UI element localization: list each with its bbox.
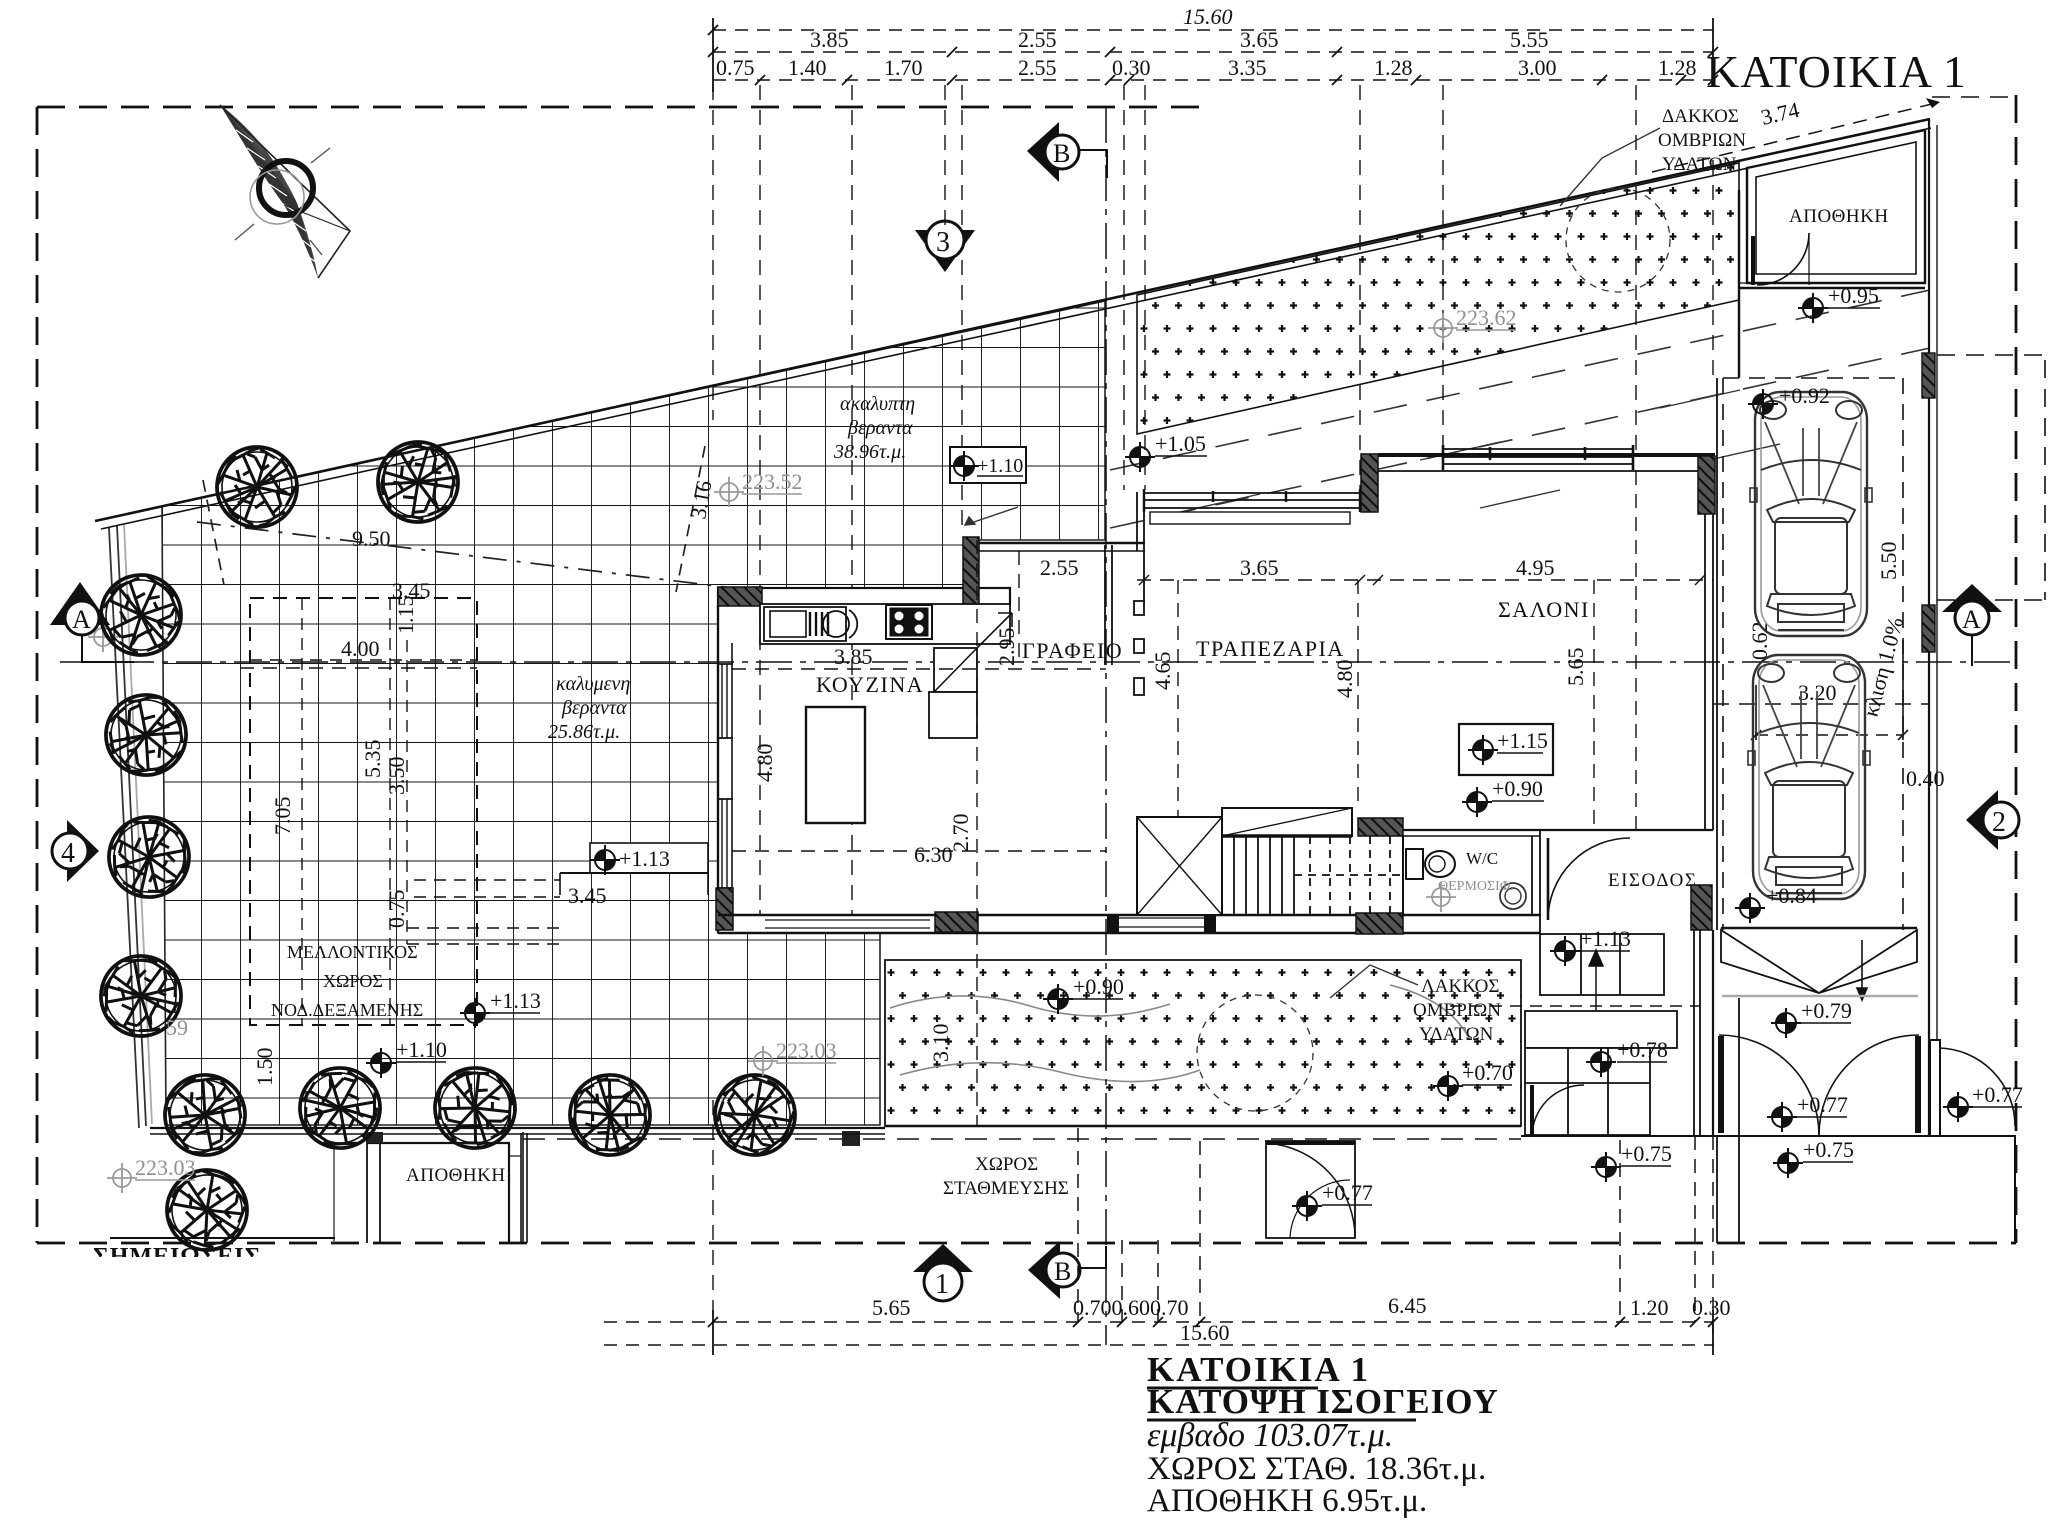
svg-text:1.28: 1.28 [1374,55,1413,80]
svg-text:3.35: 3.35 [1228,55,1267,80]
svg-text:5.35: 5.35 [360,740,385,779]
svg-text:3.85: 3.85 [810,27,849,52]
svg-text:5.65: 5.65 [1563,648,1588,687]
svg-text:ΧΩΡΟΣ: ΧΩΡΟΣ [323,971,383,991]
svg-text:ΓΡΑΦΕΙΟ: ΓΡΑΦΕΙΟ [1022,638,1123,663]
svg-text:15.60: 15.60 [1180,1320,1230,1345]
svg-text:4.80: 4.80 [752,744,777,783]
svg-text:59: 59 [166,1015,188,1040]
svg-text:+1.05: +1.05 [1155,431,1206,456]
svg-text:+1.13: +1.13 [619,846,670,871]
svg-text:223.03: 223.03 [776,1038,837,1063]
svg-text:6.30: 6.30 [914,842,953,867]
svg-text:5.65: 5.65 [872,1295,911,1320]
svg-text:1.40: 1.40 [788,55,827,80]
svg-text:3.85: 3.85 [834,644,873,669]
svg-text:ΣΤΑΘΜΕΥΣΗΣ: ΣΤΑΘΜΕΥΣΗΣ [943,1178,1069,1199]
svg-text:βεραντα: βεραντα [561,697,627,719]
svg-text:+1.15: +1.15 [1497,728,1548,753]
svg-text:223.52: 223.52 [742,469,803,494]
svg-text:+0.75: +0.75 [1621,1141,1672,1166]
svg-text:ΑΠΟΘΗΚΗ 6.95τ.μ.: ΑΠΟΘΗΚΗ 6.95τ.μ. [1147,1483,1427,1519]
svg-text:0.700.600.70: 0.700.600.70 [1073,1295,1189,1320]
svg-text:+0.77: +0.77 [1322,1180,1373,1205]
svg-text:2.55: 2.55 [1040,555,1079,580]
svg-text:25.86τ.μ.: 25.86τ.μ. [548,721,620,743]
svg-text:4: 4 [61,838,75,869]
svg-text:βεραντα: βεραντα [847,417,913,439]
svg-text:1.20: 1.20 [1630,1295,1669,1320]
svg-text:B: B [1053,139,1070,168]
svg-text:+0.77: +0.77 [1972,1082,2023,1107]
svg-text:3.50: 3.50 [384,757,409,796]
svg-text:ΚΑΤΟΙΚΙΑ 1: ΚΑΤΟΙΚΙΑ 1 [1706,46,1967,97]
svg-text:223.03: 223.03 [135,1155,196,1180]
svg-text:+1.13: +1.13 [490,988,541,1013]
svg-text:ΟΜΒΡΙΩΝ: ΟΜΒΡΙΩΝ [1658,130,1746,151]
svg-text:W/C: W/C [1466,849,1498,868]
svg-text:2.55: 2.55 [1018,27,1057,52]
svg-text:5.50: 5.50 [1876,542,1901,581]
svg-text:+0.95: +0.95 [1828,283,1879,308]
svg-text:ΜΕΛΛΟΝΤΙΚΟΣ: ΜΕΛΛΟΝΤΙΚΟΣ [287,942,418,962]
svg-text:ΤΡΑΠΕΖΑΡΙΑ: ΤΡΑΠΕΖΑΡΙΑ [1196,636,1345,661]
svg-text:0.30: 0.30 [1692,1295,1731,1320]
svg-text:4.80: 4.80 [1332,660,1357,699]
svg-text:ΑΠΟΘΗΚΗ: ΑΠΟΘΗΚΗ [406,1165,506,1186]
svg-text:+0.90: +0.90 [1492,776,1543,801]
svg-text:15.60: 15.60 [1183,4,1233,29]
svg-text:+1.10: +1.10 [396,1037,447,1062]
svg-text:3.10: 3.10 [928,1024,953,1063]
svg-text:+0.78: +0.78 [1617,1037,1668,1062]
svg-text:ΥΔΑΤΩΝ: ΥΔΑΤΩΝ [1419,1024,1494,1045]
svg-text:1.50: 1.50 [252,1048,277,1087]
svg-text:1.15: 1.15 [393,596,418,635]
svg-text:2: 2 [1992,807,2006,838]
svg-text:5.55: 5.55 [1510,27,1549,52]
svg-text:ΥΔΑΤΩΝ: ΥΔΑΤΩΝ [1662,154,1737,175]
svg-text:0.62: 0.62 [1747,622,1772,661]
svg-text:3.65: 3.65 [1240,555,1279,580]
svg-text:1: 1 [935,1269,949,1300]
svg-text:ΛΑΚΚΟΣ: ΛΑΚΚΟΣ [1421,976,1499,997]
svg-text:3.65: 3.65 [1240,27,1279,52]
svg-text:ΧΩΡΟΣ ΣΤΑΘ. 18.36τ.μ.: ΧΩΡΟΣ ΣΤΑΘ. 18.36τ.μ. [1147,1451,1486,1487]
svg-text:ΝΟΔ.ΔΕΞΑΜΕΝΗΣ: ΝΟΔ.ΔΕΞΑΜΕΝΗΣ [271,1000,423,1020]
svg-text:ΧΩΡΟΣ: ΧΩΡΟΣ [975,1154,1038,1175]
svg-text:6.45: 6.45 [1388,1293,1427,1318]
svg-text:7.05: 7.05 [270,797,295,836]
svg-text:38.96τ.μ.: 38.96τ.μ. [833,441,906,463]
svg-text:ΚΑΤΟΨΗ ΙΣΟΓΕΙΟΥ: ΚΑΤΟΨΗ ΙΣΟΓΕΙΟΥ [1147,1382,1499,1421]
svg-text:ΟΜΒΡΙΩΝ: ΟΜΒΡΙΩΝ [1413,1000,1501,1021]
svg-text:3.45: 3.45 [568,883,607,908]
svg-text:ΚΟΥΖΙΝΑ: ΚΟΥΖΙΝΑ [816,672,924,697]
svg-text:εμβαδο 103.07τ.μ.: εμβαδο 103.07τ.μ. [1147,1417,1393,1454]
svg-text:+0.92: +0.92 [1779,383,1830,408]
svg-text:+1.13: +1.13 [1580,926,1631,951]
svg-text:4.65: 4.65 [1150,652,1175,691]
svg-text:3: 3 [936,227,950,258]
svg-text:+0.77: +0.77 [1797,1092,1848,1117]
svg-text:0.75: 0.75 [384,890,409,929]
svg-text:0.40: 0.40 [1906,766,1945,791]
svg-text:A: A [1962,605,1981,634]
svg-text:ΔΑΚΚΟΣ: ΔΑΚΚΟΣ [1662,106,1739,127]
svg-text:3.00: 3.00 [1518,55,1557,80]
svg-text:+0.75: +0.75 [1803,1137,1854,1162]
svg-text:4.00: 4.00 [341,636,380,661]
svg-text:223.62: 223.62 [1456,305,1517,330]
svg-text:ΑΠΟΘΗΚΗ: ΑΠΟΘΗΚΗ [1789,206,1889,227]
svg-text:1.70: 1.70 [884,55,923,80]
svg-text:9.50: 9.50 [352,526,391,551]
svg-text:+0.79: +0.79 [1801,998,1852,1023]
svg-text:0.30: 0.30 [1112,55,1151,80]
svg-text:A: A [72,605,91,634]
svg-text:+0.70: +0.70 [1462,1060,1513,1085]
svg-text:ακαλυπτη: ακαλυπτη [840,393,915,415]
svg-text:ΣΑΛΟΝΙ: ΣΑΛΟΝΙ [1498,597,1590,622]
svg-text:4.95: 4.95 [1516,555,1555,580]
svg-text:2.95: 2.95 [994,628,1019,667]
svg-text:ΕΙΣΟΔΟΣ: ΕΙΣΟΔΟΣ [1608,870,1697,891]
svg-text:2.55: 2.55 [1018,55,1057,80]
svg-text:B: B [1054,1257,1071,1286]
svg-text:+0.84: +0.84 [1766,883,1817,908]
svg-text:2.70: 2.70 [948,814,973,853]
svg-text:καλυμενη: καλυμενη [556,673,630,695]
svg-text:0.75: 0.75 [716,55,755,80]
svg-text:1.28: 1.28 [1658,55,1697,80]
svg-text:+1.10: +1.10 [977,455,1023,477]
svg-text:+0.90: +0.90 [1073,974,1124,999]
